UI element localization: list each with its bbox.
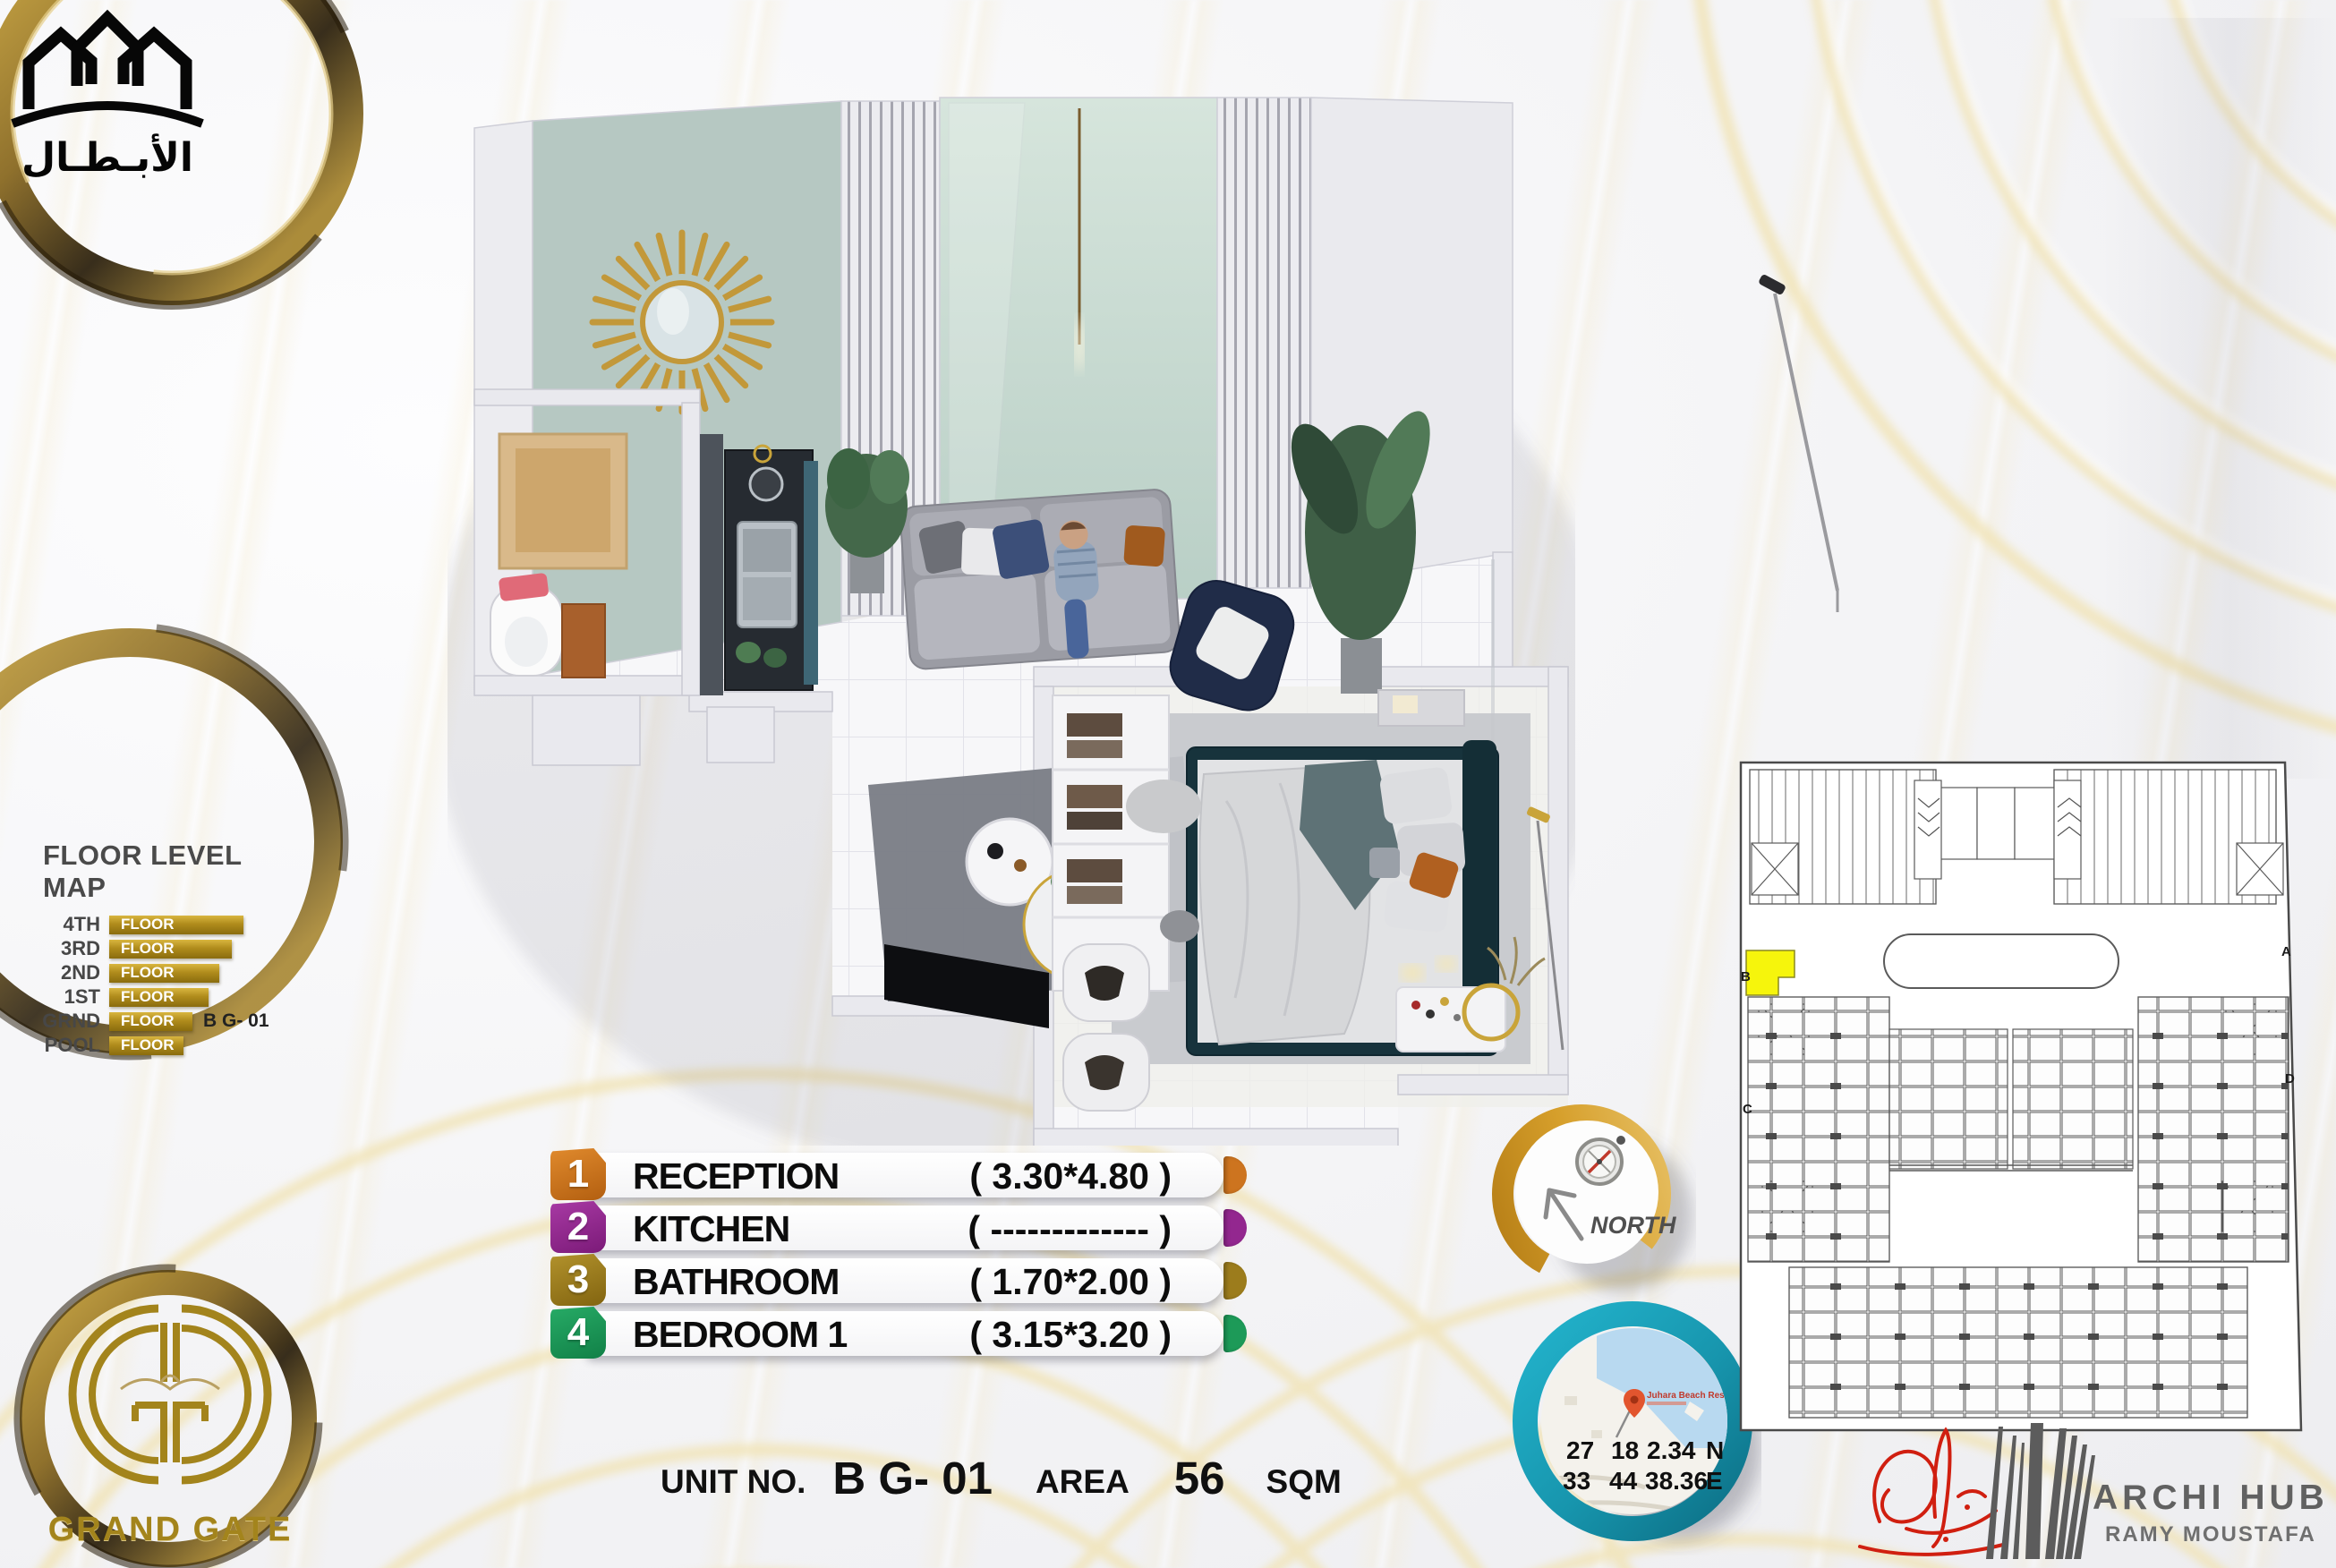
longitude-line: 33 44 38.36 E (1563, 1467, 1723, 1495)
mid-right-units (2013, 1029, 2133, 1169)
area-label: AREA (1036, 1463, 1130, 1504)
room-dimensions: ( 3.15*3.20 ) (969, 1314, 1172, 1356)
row-end-cap (1223, 1262, 1247, 1300)
unit-no-value: B G- 01 (832, 1452, 993, 1504)
room-name: BEDROOM 1 (633, 1314, 847, 1356)
floor-bar[interactable]: FLOOR (109, 1012, 192, 1031)
row-end-cap (1223, 1315, 1247, 1352)
latitude-line: 27 18 2.34 N (1566, 1436, 1724, 1464)
room-number-badge: 1 (550, 1148, 606, 1200)
unit-info: UNIT NO. B G- 01 AREA 56 SQM (661, 1452, 1342, 1504)
poster-page: الأبـطـال FLOOR LEVEL MAP 4TH FLOOR 3RD … (0, 0, 2336, 1568)
room-name: BATHROOM (633, 1261, 839, 1303)
room-dimensions: ( 1.70*2.00 ) (969, 1261, 1172, 1303)
room-dimensions: ( 3.30*4.80 ) (969, 1155, 1172, 1197)
sofa (899, 489, 1181, 670)
bath-bottom-wall (474, 676, 689, 695)
bedroom (1053, 690, 1563, 1111)
room-name: KITCHEN (633, 1208, 789, 1250)
area-value: 56 (1174, 1452, 1225, 1504)
pool-outline (1884, 934, 2119, 988)
legend-row-kitchen[interactable]: 2 KITCHEN ( ------------- ) (586, 1206, 1223, 1250)
floor-level-label: POOL (36, 1034, 100, 1057)
floor-row-1st: 1ST FLOOR (36, 987, 304, 1007)
floor-row-pool: POOL FLOOR (36, 1035, 304, 1055)
kitchen (725, 446, 818, 690)
floor-lamp-icon (1750, 268, 1884, 618)
archi-hub-logo-icon (1974, 1416, 2099, 1564)
slat-panel-right (1217, 98, 1311, 588)
nightstand-top (1378, 690, 1464, 726)
building-site-plan[interactable]: A B C D (1739, 761, 2305, 1434)
grand-gate-name: GRAND GATE (36, 1511, 304, 1549)
room-number-badge: 3 (550, 1254, 606, 1306)
entry-wall-stub-left (533, 695, 640, 765)
floor-level-label: 1ST (36, 985, 100, 1009)
floor-level-map: FLOOR LEVEL MAP 4TH FLOOR 3RD FLOOR 2ND … (36, 839, 304, 1060)
apartment-3d-render[interactable] (448, 49, 1575, 1146)
floor-row-3rd: 3RD FLOOR (36, 939, 304, 959)
marker-a: A (2281, 944, 2291, 959)
living-right-wall (1493, 552, 1513, 667)
crumpled-throw (1126, 780, 1201, 833)
marker-b: B (1741, 969, 1751, 984)
floor-level-label: GRND (36, 1010, 100, 1033)
counter-plant (736, 642, 761, 663)
floor-bar[interactable]: FLOOR (109, 940, 232, 959)
table-lamp-glow (1401, 965, 1424, 981)
location-map-widget[interactable]: Juhara Beach Resort 27 18 2.34 N 33 44 3… (1511, 1296, 1761, 1555)
room-number-badge: 2 (550, 1201, 606, 1253)
floor-bar[interactable]: FLOOR (109, 988, 209, 1007)
room-number-badge: 4 (550, 1307, 606, 1359)
mid-left-units (1889, 1029, 2008, 1169)
grand-gate-monogram (49, 1296, 291, 1502)
current-unit-note: B G- 01 (203, 1010, 269, 1032)
marker-c: C (1743, 1102, 1752, 1117)
compass-rose-icon (1577, 1136, 1625, 1184)
wood-cabinet (562, 604, 605, 677)
unit-no-label: UNIT NO. (661, 1463, 806, 1504)
kitchen-cabinet-side (804, 461, 818, 685)
houses-icon (9, 2, 206, 136)
sunburst-mirror (593, 233, 772, 412)
entry-wall-stub-right (707, 707, 774, 763)
kitchen-partition-panel (700, 434, 723, 695)
legend-row-bedroom1[interactable]: 4 BEDROOM 1 ( 3.15*3.20 ) (586, 1311, 1223, 1356)
floor-level-label: 4TH (36, 913, 100, 936)
north-label: NORTH (1590, 1212, 1676, 1239)
floor-level-map-title: FLOOR LEVEL MAP (43, 839, 304, 904)
cooking-pot (750, 468, 782, 500)
abtal-logo-arabic: الأبـطـال (9, 135, 206, 181)
bedroom-bottom-wall (1034, 1129, 1398, 1146)
archi-hub-studio-name: ARCHI HUB (2093, 1479, 2329, 1518)
room-dimensions: ( ------------- ) (968, 1208, 1172, 1250)
floor-level-label: 3RD (36, 937, 100, 960)
row-end-cap (1223, 1156, 1247, 1194)
shower-floor (516, 448, 610, 552)
floor-bar[interactable]: FLOOR (109, 964, 219, 983)
bedroom-right-wall (1548, 667, 1568, 1095)
floor-bar[interactable]: FLOOR (109, 1036, 183, 1055)
legend-row-reception[interactable]: 1 RECEPTION ( 3.30*4.80 ) (586, 1153, 1223, 1197)
bathroom-top-wall (474, 389, 700, 405)
abtal-logo: الأبـطـال (9, 2, 215, 181)
archi-hub-author-name: RAMY MOUSTAFA (2105, 1522, 2316, 1547)
floor-bar[interactable]: FLOOR (109, 916, 243, 934)
bathroom-divider-wall (682, 403, 700, 695)
floor-row-grnd: GRND FLOOR B G- 01 (36, 1011, 304, 1031)
room-legend: 1 RECEPTION ( 3.30*4.80 ) 2 KITCHEN ( --… (552, 1153, 1259, 1372)
row-end-cap (1223, 1209, 1247, 1247)
marker-d: D (2285, 1071, 2295, 1087)
area-unit: SQM (1266, 1463, 1342, 1504)
floor-row-4th: 4TH FLOOR (36, 915, 304, 934)
amber-pillow (1123, 525, 1165, 567)
floor-level-label: 2ND (36, 961, 100, 984)
room-name: RECEPTION (633, 1155, 839, 1197)
floor-row-2nd: 2ND FLOOR (36, 963, 304, 983)
legend-row-bathroom[interactable]: 3 BATHROOM ( 1.70*2.00 ) (586, 1258, 1223, 1303)
bedroom-notch-wall (1398, 1075, 1568, 1095)
north-compass: NORTH (1481, 1094, 1696, 1308)
navy-throw (992, 518, 1051, 580)
